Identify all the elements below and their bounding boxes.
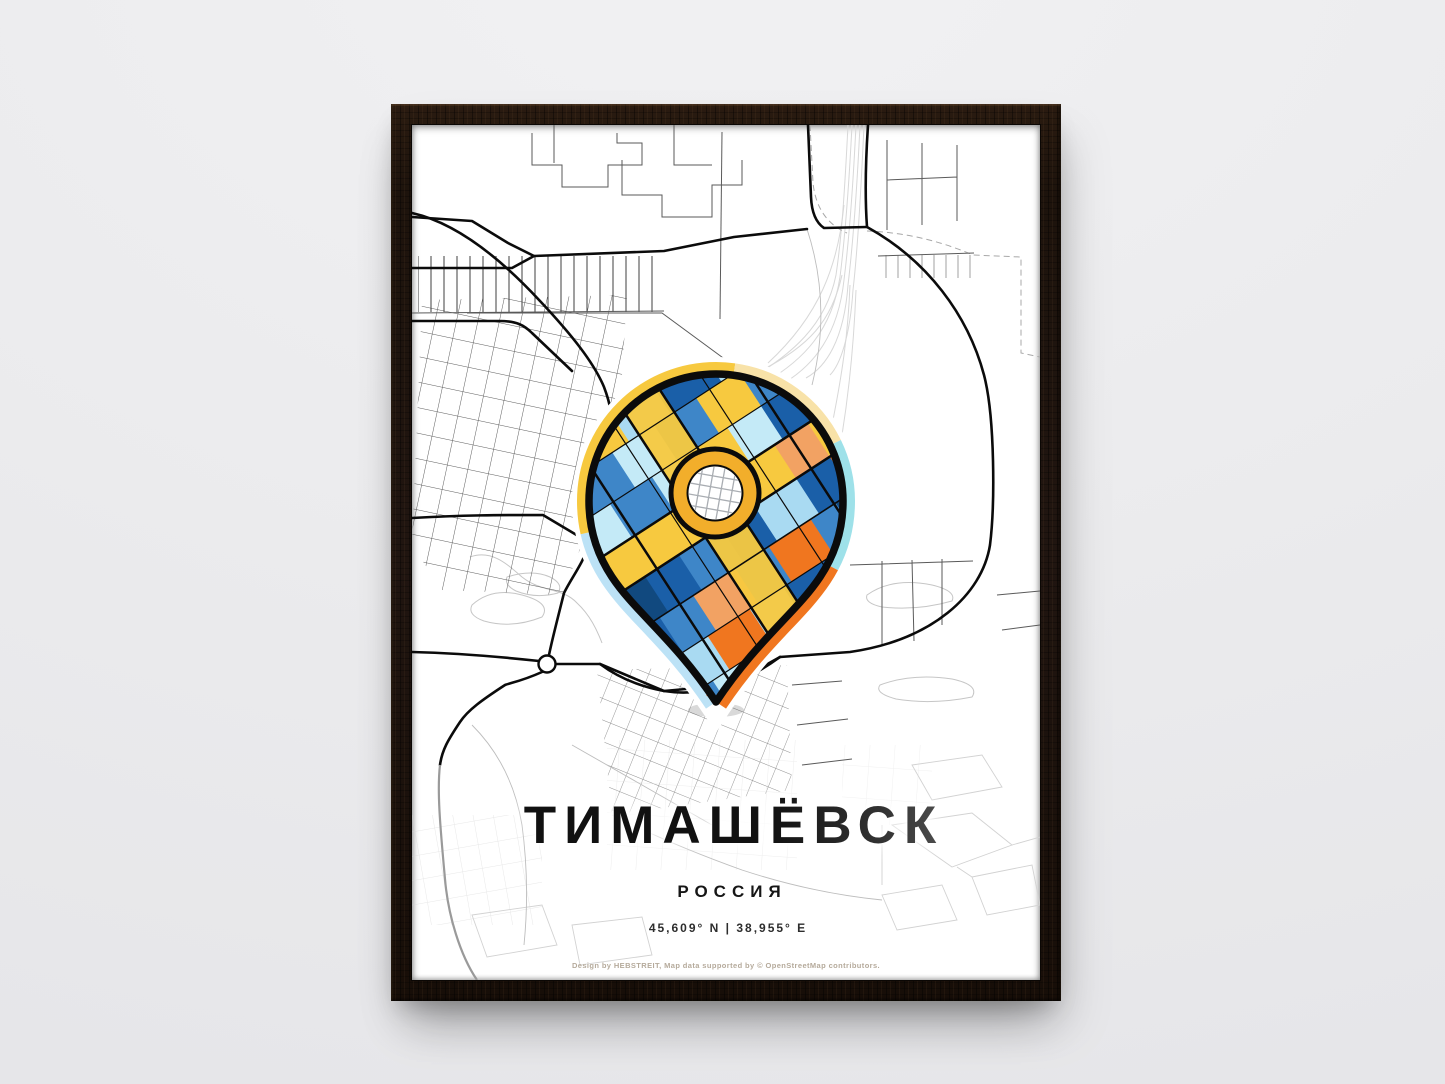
poster-paper: ТИМАШЁВСК РОССИЯ 45,609° N | 38,955° E D…	[412, 125, 1040, 980]
scene: { "scene": { "wall_color": "#ECECEE", "f…	[0, 0, 1445, 1084]
ring-target-icon	[669, 447, 762, 540]
picture-frame: ТИМАШЁВСК РОССИЯ 45,609° N | 38,955° E D…	[391, 104, 1061, 1001]
page-title: ТИМАШЁВСК	[412, 797, 1040, 855]
admin-boundary-dashed	[810, 125, 1040, 357]
roundabout	[539, 656, 556, 673]
credit-line: Design by HEBSTREIT, Map data supported …	[412, 961, 1040, 970]
coordinates: 45,609° N | 38,955° E	[412, 921, 1040, 935]
poster-subtitle: РОССИЯ	[412, 882, 1040, 902]
